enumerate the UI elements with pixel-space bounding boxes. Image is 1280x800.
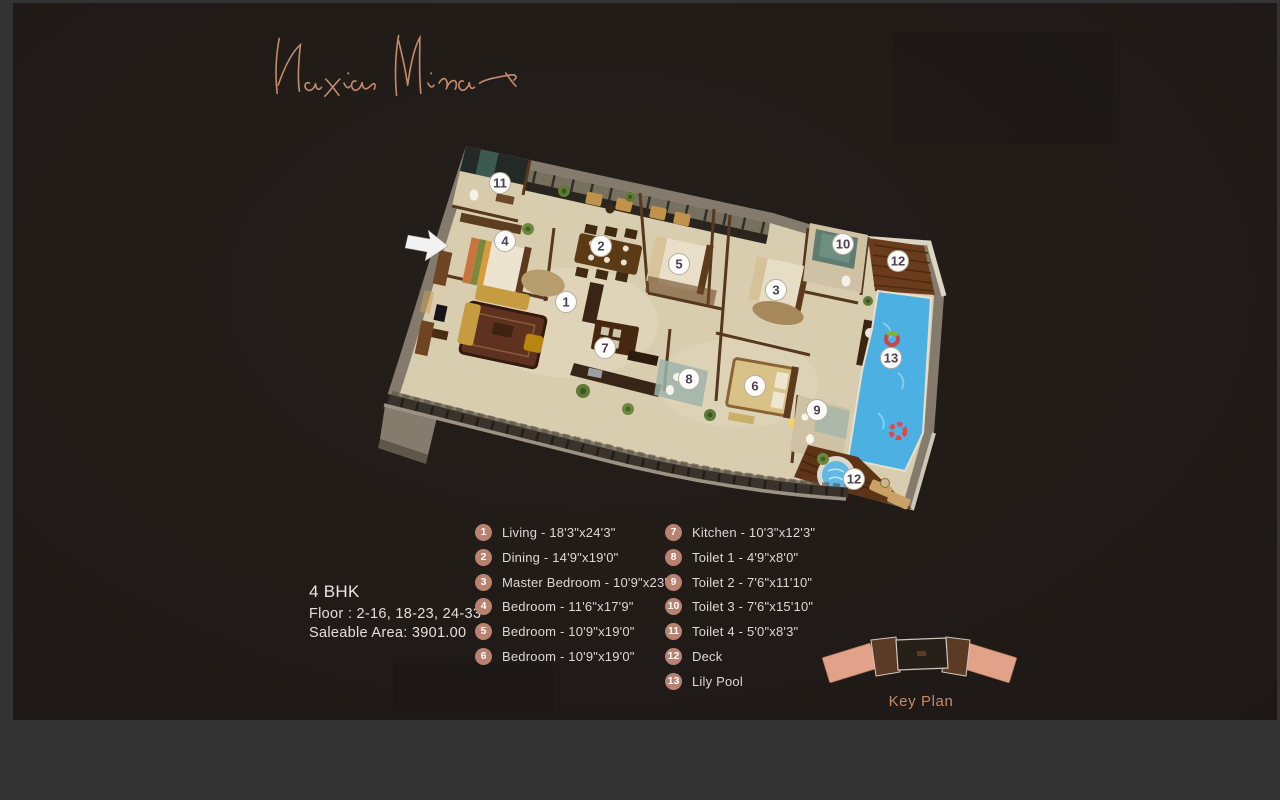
plan-marker-number: 4 [501,234,509,249]
legend-number-badge: 9 [665,574,682,591]
legend-item: 2Dining - 14'9"x19'0" [475,549,679,566]
plan-marker-number: 5 [675,257,682,272]
legend-label: Kitchen - 10'3"x12'3" [692,525,815,540]
brochure-screenshot: { "colors": { "backdrop": "#333333", "pa… [0,0,1280,800]
legend-label: Master Bedroom - 10'9"x23'0" [502,575,679,590]
plan-marker-number: 2 [597,239,604,254]
plan-marker-number: 13 [884,351,898,366]
key-plan-left-wing [822,643,877,682]
legend-number-badge: 11 [665,623,682,640]
legend-label: Toilet 2 - 7'6"x11'10" [692,575,812,590]
brochure-page: Naxia Minar [13,3,1277,720]
plan-marker-number: 8 [685,372,692,387]
legend-item: 11Toilet 4 - 5'0"x8'3" [665,623,815,640]
legend-label: Lily Pool [692,674,743,689]
legend-item: 13Lily Pool [665,673,815,690]
legend-item: 12Deck [665,648,815,665]
key-plan-right-wing [961,643,1016,682]
legend-item: 3Master Bedroom - 10'9"x23'0" [475,574,679,591]
legend-number-badge: 6 [475,648,492,665]
unit-floors: Floor : 2-16, 18-23, 24-33 [309,606,481,622]
toilet1-wc [666,385,674,395]
legend-label: Bedroom - 10'9"x19'0" [502,649,635,664]
deck-table [881,479,890,488]
legend-label: Toilet 4 - 5'0"x8'3" [692,624,798,639]
legend-column-right: 7Kitchen - 10'3"x12'3"8Toilet 1 - 4'9"x8… [665,524,815,698]
legend-label: Toilet 3 - 7'6"x15'10" [692,599,813,614]
legend-number-badge: 2 [475,549,492,566]
legend-item: 9Toilet 2 - 7'6"x11'10" [665,574,815,591]
background-blotch [893,33,1113,143]
plan-marker-number: 3 [772,283,779,298]
legend-column-left: 1Living - 18'3"x24'3"2Dining - 14'9"x19'… [475,524,679,673]
plan-marker-number: 12 [891,254,905,269]
legend-number-badge: 10 [665,598,682,615]
legend-item: 8Toilet 1 - 4'9"x8'0" [665,549,815,566]
legend-number-badge: 8 [665,549,682,566]
plan-marker-number: 11 [493,176,507,191]
unit-info: 4 BHK Floor : 2-16, 18-23, 24-33 Saleabl… [309,582,481,644]
legend-label: Toilet 1 - 4'9"x8'0" [692,550,798,565]
brand-logo: Naxia Minar [263,29,521,113]
plan-marker-number: 6 [751,379,758,394]
legend-item: 7Kitchen - 10'3"x12'3" [665,524,815,541]
key-plan-label: Key Plan [822,693,1020,710]
legend-item: 4Bedroom - 11'6"x17'9" [475,598,679,615]
plan-marker-number: 9 [813,403,820,418]
legend-item: 10Toilet 3 - 7'6"x15'10" [665,598,815,615]
brand-signature-strokes [276,36,516,97]
legend-item: 5Bedroom - 10'9"x19'0" [475,623,679,640]
legend-label: Bedroom - 10'9"x19'0" [502,624,635,639]
legend-number-badge: 3 [475,574,492,591]
unit-type: 4 BHK [309,582,481,602]
plan-marker-number: 7 [601,341,608,356]
legend-label: Deck [692,649,722,664]
legend-label: Dining - 14'9"x19'0" [502,550,618,565]
toilet2-wc [806,434,814,444]
legend-label: Bedroom - 11'6"x17'9" [502,599,634,614]
floor-plan: 1234567891011121213 [378,133,978,533]
legend-number-badge: 12 [665,648,682,665]
plan-marker-number: 10 [836,237,850,252]
legend-item: 6Bedroom - 10'9"x19'0" [475,648,679,665]
legend-number-badge: 7 [665,524,682,541]
unit-saleable-area: Saleable Area: 3901.00 [309,625,481,641]
legend-item: 1Living - 18'3"x24'3" [475,524,679,541]
key-plan-core [917,651,926,656]
key-plan-diagram [822,628,1017,686]
toilet4-wc [470,190,479,201]
legend-label: Living - 18'3"x24'3" [502,525,616,540]
legend-number-badge: 4 [475,598,492,615]
legend-number-badge: 13 [665,673,682,690]
legend-number-badge: 5 [475,623,492,640]
toilet3-wc [842,276,851,287]
key-plan: Key Plan [822,628,1020,710]
legend-number-badge: 1 [475,524,492,541]
plan-marker-number: 1 [562,295,569,310]
plan-marker-number: 12 [847,472,861,487]
